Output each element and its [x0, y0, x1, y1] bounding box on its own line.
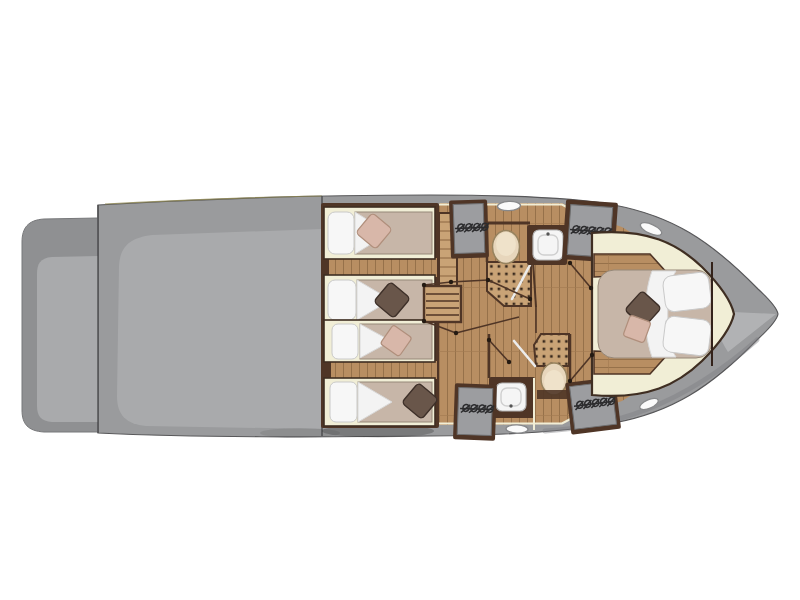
- single-berth-1: [324, 207, 435, 259]
- guest-cabins: [321, 203, 439, 428]
- basin-faucet: [546, 232, 549, 235]
- hinge-dot: [528, 297, 532, 301]
- hinge-dot: [568, 379, 572, 383]
- floorplan-canvas: [0, 0, 800, 600]
- basin-faucet: [509, 404, 512, 407]
- toilet-seat: [496, 232, 516, 256]
- single-berth-2: [324, 275, 435, 324]
- single-berth-3: [324, 320, 435, 362]
- pillow-icon: [330, 382, 357, 422]
- hinge-dot: [507, 360, 511, 364]
- hanging-locker-top-left: [449, 199, 490, 258]
- hinge-dot: [590, 353, 594, 357]
- hinge-dot: [486, 278, 490, 282]
- pillow-icon: [328, 212, 354, 254]
- pillow-icon: [328, 280, 356, 320]
- deck-hatch-icon: [506, 424, 528, 433]
- shower-floor: [534, 334, 569, 366]
- pillow-icon: [662, 271, 712, 312]
- double-berth: [598, 270, 712, 358]
- hinge-dot: [422, 319, 426, 323]
- swim-platform-inner-panel: [37, 256, 98, 422]
- deck-shadow-stern: [260, 428, 340, 438]
- hanging-locker-bottom-left: [453, 383, 497, 440]
- pillow-icon: [662, 315, 712, 356]
- cabin-floor-strip-2: [331, 361, 437, 379]
- pillow-icon: [332, 324, 358, 359]
- stair-lower-flight: [424, 286, 461, 322]
- hinge-dot: [449, 280, 453, 284]
- yacht-floorplan: [0, 0, 800, 600]
- hinge-dot: [422, 283, 426, 287]
- hinge-dot: [454, 331, 458, 335]
- hinge-dot: [568, 261, 572, 265]
- hinge-dot: [589, 286, 593, 290]
- cabin-floor-strip-1: [329, 258, 437, 277]
- single-berth-4: [324, 378, 438, 426]
- cockpit-deck: [117, 229, 322, 429]
- hinge-dot: [487, 338, 491, 342]
